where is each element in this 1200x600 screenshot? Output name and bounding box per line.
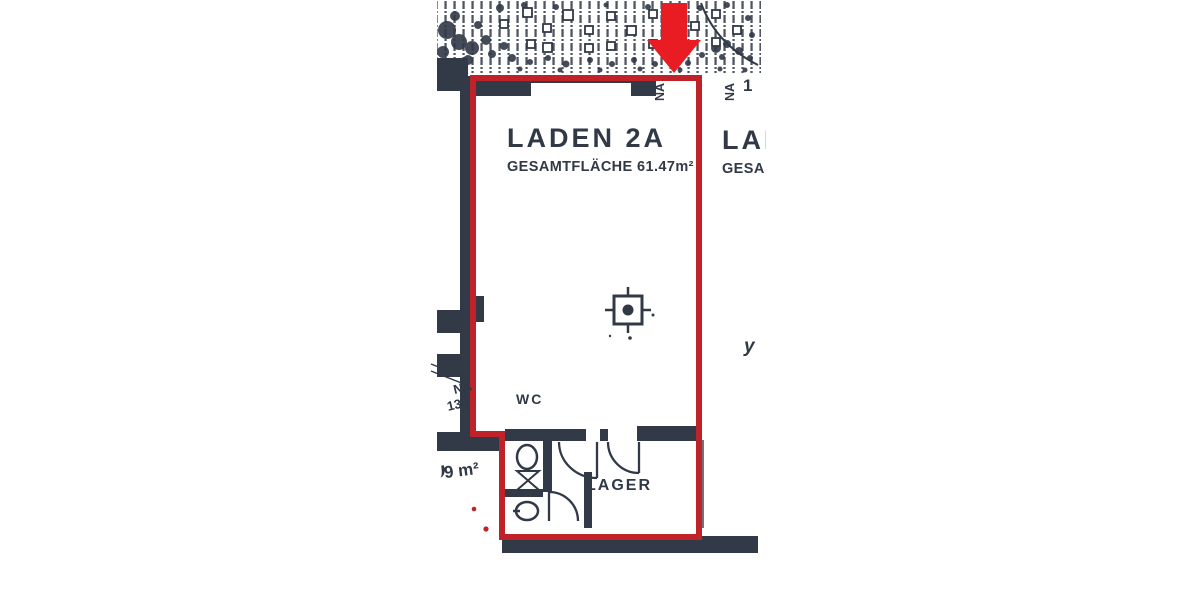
wall-wc-top — [505, 429, 586, 441]
floor-plan-scan: NA NA 1 LADEN 2A GESAMTFLÄCHE 61.47m² LA… — [0, 0, 1200, 600]
storefront-pier-left — [475, 79, 531, 96]
neighbor-unit-title: LAD — [722, 125, 766, 156]
toilet-bowl-icon — [517, 445, 537, 469]
duct-label-left: NA — [653, 83, 667, 101]
duct-annotation: NA 130 — [442, 378, 477, 414]
unit-title: LADEN 2A — [507, 123, 666, 154]
floor-plan-drawing: NA NA 1 — [0, 0, 1200, 600]
room-label-wc: WC — [516, 391, 543, 407]
column-marker-icon — [605, 287, 655, 340]
door-arc-sink-room — [549, 492, 578, 521]
duct-label-right: NA — [723, 83, 737, 101]
wall-left-stub-2 — [437, 354, 462, 377]
wall-left-stub-1 — [437, 310, 462, 333]
room-label-lager: LAGER — [586, 477, 652, 495]
sanitary-fixtures — [513, 445, 539, 520]
toilet-pedestal-icon — [517, 471, 539, 490]
wall-lager-top — [637, 426, 699, 441]
wall-wc-vertical — [543, 441, 552, 492]
pavement-hatch-texture — [437, 0, 761, 73]
door-arc-lager — [608, 442, 639, 473]
handwritten-mark: y — [744, 336, 755, 358]
unit-area-label: GESAMTFLÄCHE 61.47m² — [507, 159, 694, 175]
neighbor-unit-area-label: GESA — [722, 161, 764, 177]
red-specks — [472, 507, 489, 532]
door-jamb — [600, 429, 608, 441]
top-right-digit: 1 — [743, 76, 752, 95]
left-area-annotation: 9 m² — [443, 459, 480, 483]
left-area-text: 9 m² — [443, 459, 480, 482]
